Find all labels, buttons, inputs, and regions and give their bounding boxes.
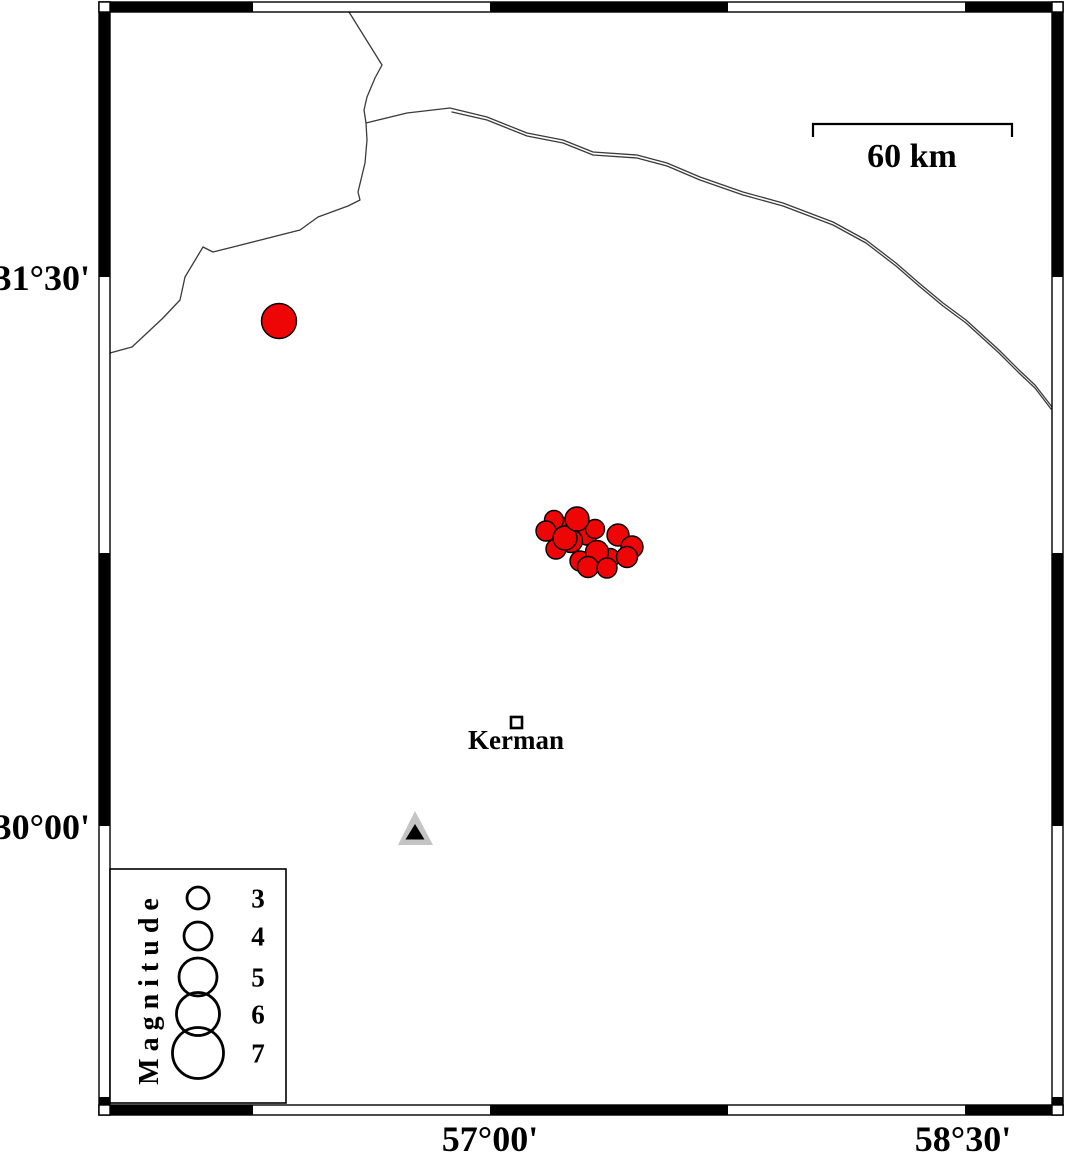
frame-corner	[99, 2, 110, 12]
frame-segment	[99, 553, 110, 826]
lat-label-top: 31°30'	[0, 258, 90, 298]
fault-lines	[110, 12, 1052, 409]
epicenter-marker	[597, 558, 617, 578]
legend-title: Magnitude	[134, 891, 165, 1085]
epicenter-marker	[617, 547, 638, 568]
scale-bar: 60 km	[813, 124, 1012, 175]
frame-segment	[110, 2, 253, 12]
fault-line-east-parallel	[452, 112, 1051, 409]
frame-segment	[1052, 1097, 1063, 1105]
frame-corner	[1052, 1105, 1063, 1115]
station-marker	[398, 811, 433, 845]
seismicity-map: Kerman 60 km	[0, 0, 1066, 1154]
epicenter-marker	[262, 304, 297, 339]
legend-magnitude-value: 5	[251, 963, 265, 993]
epicenter-marker	[578, 557, 599, 578]
city-marker-kerman: Kerman	[468, 717, 564, 755]
legend-magnitude-value: 3	[251, 884, 265, 914]
legend-magnitude-value: 4	[251, 922, 265, 952]
scale-bar-label: 60 km	[867, 138, 957, 175]
epicenter-marker	[565, 507, 589, 531]
lat-label-bottom: 30°00'	[0, 807, 90, 847]
scale-bar-bracket	[813, 124, 1012, 137]
frame-segment	[490, 2, 728, 12]
frame-corner	[99, 1105, 110, 1115]
frame-segment	[1052, 12, 1063, 277]
legend-magnitude-value: 7	[251, 1039, 265, 1069]
lon-label-right: 58°30'	[915, 1119, 1011, 1154]
frame-segment	[99, 12, 110, 277]
frame-corner	[1052, 2, 1063, 12]
legend-magnitude-value: 6	[251, 1000, 265, 1030]
fault-line-north	[110, 12, 382, 353]
magnitude-legend: Magnitude 34567	[110, 869, 286, 1103]
city-label: Kerman	[468, 725, 564, 755]
frame-segment	[490, 1105, 728, 1115]
lon-label-left: 57°00'	[442, 1119, 538, 1154]
frame-segment	[1052, 553, 1063, 826]
frame-segment	[965, 2, 1052, 12]
map-svg: Kerman 60 km	[0, 0, 1066, 1154]
frame-segment	[99, 1097, 110, 1105]
frame-segment	[965, 1105, 1052, 1115]
frame-segment	[110, 1105, 253, 1115]
epicenter-cluster	[262, 304, 644, 579]
